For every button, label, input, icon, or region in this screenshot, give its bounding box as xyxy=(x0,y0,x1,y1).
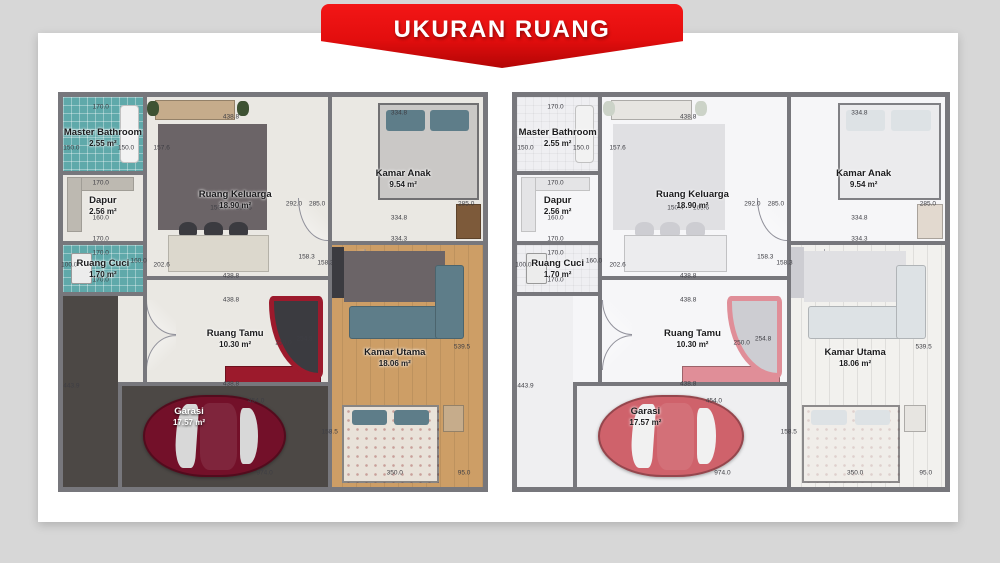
dimension-label: 95.0 xyxy=(458,470,471,477)
dimension-label: 100.0 xyxy=(515,261,531,268)
dimension-label: 254.8 xyxy=(755,335,771,342)
dimension-label: 100.0 xyxy=(61,261,77,268)
label-ruang-tamu: Ruang Tamu 10.30 m² xyxy=(664,329,721,349)
dimension-label: 254.8 xyxy=(296,335,312,342)
dimension-label: 158.3 xyxy=(757,253,773,260)
dimension-label: 158.3 xyxy=(776,259,792,266)
dimension-label: 170.0 xyxy=(93,250,109,257)
dimension-label: 350.0 xyxy=(847,470,863,477)
dimension-labels-layer: 170.0438.8334.8150.0150.0157.6292.0285.0… xyxy=(63,97,483,487)
dimension-label: 334.8 xyxy=(851,214,867,221)
dimension-label: 454.0 xyxy=(706,398,722,405)
label-dapur: Dapur 2.56 m² xyxy=(89,196,117,216)
dimension-label: 170.0 xyxy=(547,250,563,257)
dimension-label: 438.8 xyxy=(680,296,696,303)
dimension-label: 334.3 xyxy=(851,236,867,243)
dimension-label: 170.0 xyxy=(93,236,109,243)
label-kamar-anak: Kamar Anak 9.54 m² xyxy=(836,169,891,189)
dimension-label: 438.8 xyxy=(223,296,239,303)
label-ruang-cuci: Ruang Cuci 1.70 m² xyxy=(77,259,130,279)
label-ruang-tamu: Ruang Tamu 10.30 m² xyxy=(207,329,264,349)
dimension-label: 438.8 xyxy=(223,273,239,280)
dimension-label: 170.0 xyxy=(93,103,109,110)
dimension-label: 170.0 xyxy=(547,236,563,243)
dimension-label: 158.5 xyxy=(781,429,797,436)
dimension-label: 334.3 xyxy=(391,236,407,243)
dimension-label: 160.0 xyxy=(586,257,602,264)
dimension-label: 292.0 xyxy=(744,201,760,208)
dimension-label: 334.8 xyxy=(391,214,407,221)
label-master-bathroom: Master Bathroom 2.55 m² xyxy=(519,128,597,148)
dimension-label: 539.5 xyxy=(454,343,470,350)
dimension-label: 285.0 xyxy=(458,201,474,208)
dimension-label: 170.0 xyxy=(547,179,563,186)
dimension-label: 157.6 xyxy=(609,144,625,151)
dimension-label: 285.0 xyxy=(309,201,325,208)
dimension-label: 443.9 xyxy=(517,382,533,389)
dimension-label: 250.0 xyxy=(275,339,291,346)
dimension-label: 250.0 xyxy=(734,339,750,346)
label-garasi: Garasi 17.57 m² xyxy=(173,407,205,427)
label-master-bathroom: Master Bathroom 2.55 m² xyxy=(64,128,142,148)
dimension-labels-layer: 170.0438.8334.8150.0150.0157.6292.0285.0… xyxy=(517,97,945,487)
label-kamar-utama: Kamar Utama 18.06 m² xyxy=(364,348,425,368)
dimension-label: 438.8 xyxy=(680,273,696,280)
dimension-label: 170.0 xyxy=(93,179,109,186)
dimension-label: 438.8 xyxy=(680,380,696,387)
dimension-label: 443.9 xyxy=(63,382,79,389)
dimension-label: 285.0 xyxy=(920,201,936,208)
dimension-label: 454.0 xyxy=(248,398,264,405)
dimension-label: 438.8 xyxy=(223,380,239,387)
dimension-label: 285.0 xyxy=(768,201,784,208)
page-title: UKURAN RUANG xyxy=(394,16,611,44)
dimension-label: 157.6 xyxy=(154,144,170,151)
label-ruang-cuci: Ruang Cuci 1.70 m² xyxy=(531,259,584,279)
dimension-label: 170.0 xyxy=(547,103,563,110)
floorplan-rendered: Master Bathroom 2.55 m² Dapur 2.56 m² Ru… xyxy=(58,92,488,492)
dimension-label: 974.0 xyxy=(714,470,730,477)
dimension-label: 95.0 xyxy=(919,470,932,477)
dimension-label: 158.3 xyxy=(317,259,333,266)
label-kamar-anak: Kamar Anak 9.54 m² xyxy=(376,169,431,189)
label-garasi: Garasi 17.57 m² xyxy=(629,407,661,427)
dimension-label: 539.5 xyxy=(915,343,931,350)
dimension-label: 334.8 xyxy=(391,109,407,116)
dimension-label: 202.6 xyxy=(154,261,170,268)
dimension-label: 158.3 xyxy=(298,253,314,260)
floorplan-schematic: Master Bathroom 2.55 m² Dapur 2.56 m² Ru… xyxy=(512,92,950,492)
dimension-label: 438.8 xyxy=(223,113,239,120)
dimension-label: 292.0 xyxy=(286,201,302,208)
dimension-label: 350.0 xyxy=(387,470,403,477)
dimension-label: 202.6 xyxy=(609,261,625,268)
label-ruang-keluarga: Ruang Keluarga 18.90 m² xyxy=(199,190,272,210)
label-ruang-keluarga: Ruang Keluarga 18.90 m² xyxy=(656,190,729,210)
label-dapur: Dapur 2.56 m² xyxy=(544,196,572,216)
dimension-label: 160.0 xyxy=(130,257,146,264)
dimension-label: 974.0 xyxy=(256,470,272,477)
dimension-label: 438.8 xyxy=(680,113,696,120)
dimension-label: 158.5 xyxy=(322,429,338,436)
label-kamar-utama: Kamar Utama 18.06 m² xyxy=(824,348,885,368)
dimension-label: 334.8 xyxy=(851,109,867,116)
page: UKURAN RUANG xyxy=(0,0,1000,563)
